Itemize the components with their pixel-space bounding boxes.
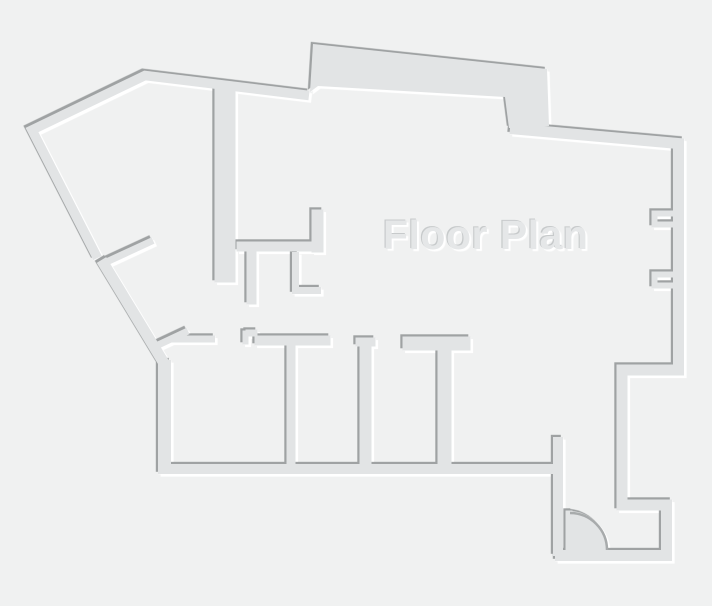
wall-diagonal-lower [102,260,165,364]
wall-north-bumpout [310,44,549,128]
floor-plan-canvas [0,0,712,606]
wall-outer-west [32,76,309,259]
wall-nook-horizontal [237,242,317,251]
wall-partition-2 [360,344,371,466]
floor-plan-title: Floor Plan [383,212,588,259]
wall-nook-stub [247,252,256,304]
wall-partition-3 [438,350,451,466]
window-notch-2 [652,272,657,288]
door-jamb [246,330,257,336]
wall-nook-L [292,252,321,294]
floor-plan: Floor Plan [0,0,712,606]
wall-nook-vertical [312,210,323,252]
wall-outer-east [510,129,679,556]
wall-stub-angled-1 [101,241,153,265]
walls [32,44,679,556]
window-notch-1 [652,211,657,227]
wall-partition-1 [287,344,295,466]
wall-partition-3-cap [403,337,470,350]
wall-central-vertical [215,86,235,282]
